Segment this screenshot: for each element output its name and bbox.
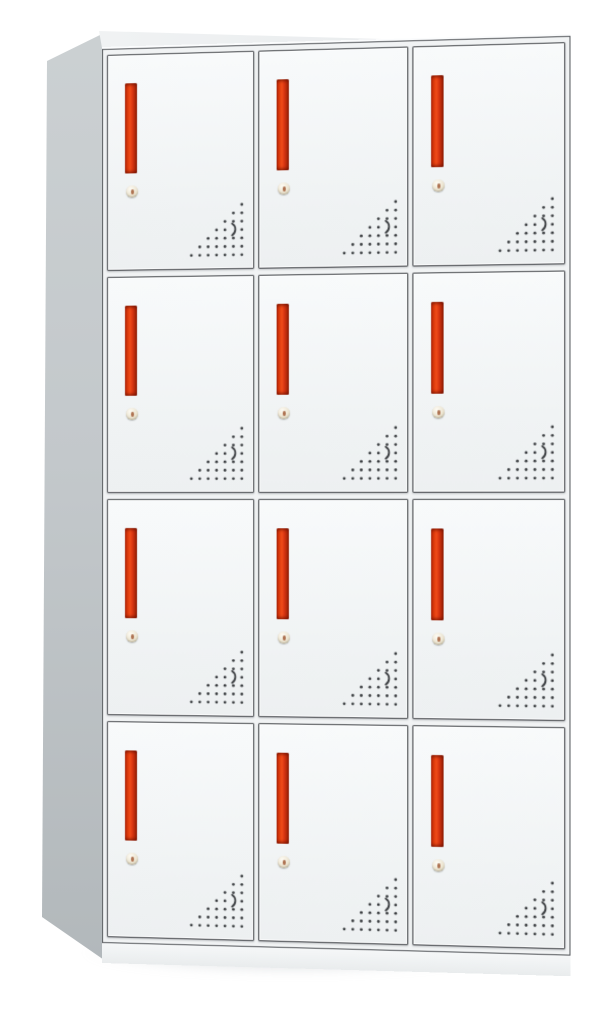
keyhole [282,635,285,640]
vent-holes-icon [497,424,556,482]
keyhole [437,636,440,641]
vent-holes-icon [341,875,399,933]
door-handle [125,528,137,618]
keyhole [131,411,134,416]
vent-holes-icon [341,425,399,482]
vent-holes-icon [497,196,556,254]
keyhole [437,183,440,188]
door-lock [126,853,138,865]
keyhole [282,186,285,191]
keyhole [282,410,285,415]
door-lock [432,859,444,872]
keyhole [131,634,134,639]
keyhole [131,856,134,861]
vent-holes-icon [188,872,245,930]
door-lock [432,406,444,418]
door-lock [278,407,290,419]
door-lock [126,185,138,197]
vent-holes-icon [497,879,556,938]
door-handle [431,755,443,847]
door-handle [431,528,443,620]
locker-door-r1-c1 [107,51,254,271]
locker-door-r3-c3 [412,499,565,721]
vent-holes-icon [188,201,245,258]
door-handle [277,528,289,619]
door-lock [126,408,138,420]
door-lock [278,856,290,868]
door-handle [431,75,443,167]
door-lock [432,179,444,191]
door-lock [432,633,444,645]
locker-door-r4-c3 [412,725,565,949]
door-lock [278,631,290,643]
vent-holes-icon [497,651,556,709]
locker-door-r4-c2 [258,723,408,945]
door-handle [277,753,289,844]
locker-door-r3-c1 [107,499,254,717]
door-handle [125,750,137,840]
keyhole [437,410,440,415]
door-handle [431,302,443,394]
door-lock [278,182,290,194]
vent-holes-icon [188,649,245,706]
door-handle [277,304,289,395]
door-handle [277,79,289,170]
locker-door-r1-c3 [412,42,565,266]
door-grid [102,36,571,956]
locker-door-r2-c1 [107,275,254,493]
door-lock [126,630,138,642]
keyhole [131,189,134,194]
locker-door-r4-c1 [107,721,254,941]
locker-door-r3-c2 [258,499,408,719]
locker-door-r2-c3 [412,270,565,492]
door-handle [125,306,137,396]
keyhole [437,863,440,868]
locker-front-face [102,34,571,976]
vent-holes-icon [341,198,399,256]
locker-door-r1-c2 [258,47,408,269]
vent-holes-icon [341,650,399,708]
locker-door-r2-c2 [258,273,408,493]
door-handle [125,83,137,173]
product-photo-canvas [0,0,605,1009]
vent-holes-icon [188,425,245,482]
keyhole [282,859,285,864]
